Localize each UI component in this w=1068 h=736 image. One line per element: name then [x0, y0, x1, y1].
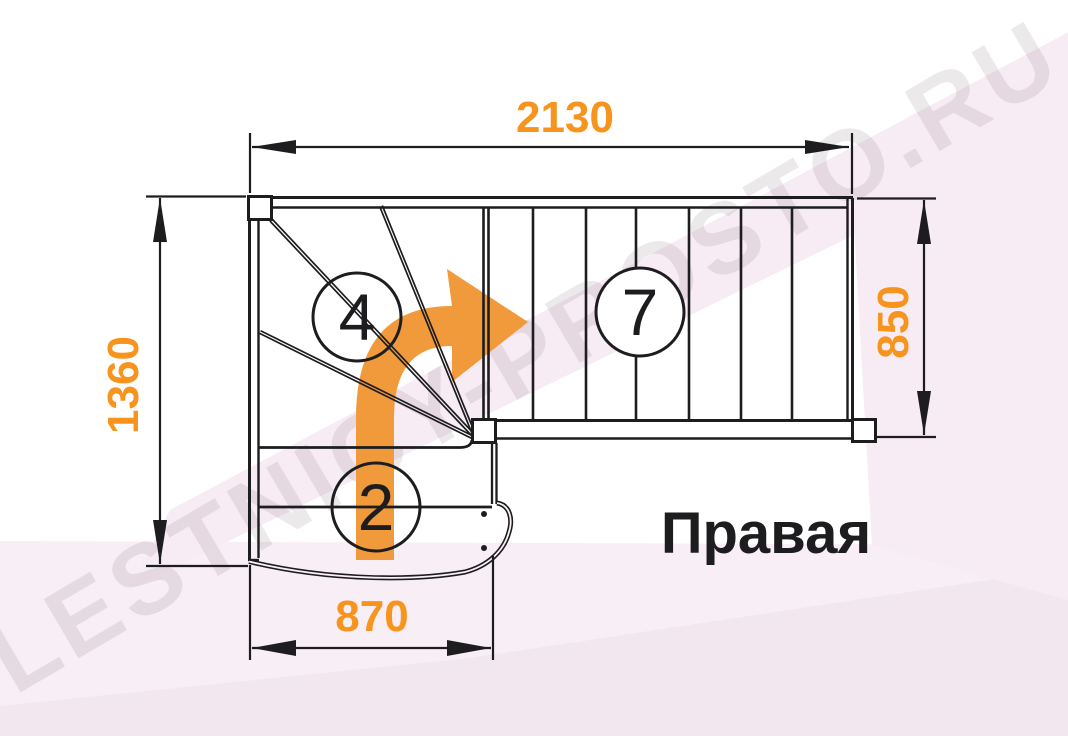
lower-flight-steps-count: 2	[358, 470, 395, 544]
stair-plan-drawing: LESTNICY-PROSTO.RU	[0, 0, 1068, 736]
post-top-left	[249, 197, 272, 220]
dimension-left-value: 1360	[99, 336, 148, 434]
orientation-label: Правая	[661, 501, 871, 566]
stair-plan-page: LESTNICY-PROSTO.RU	[0, 0, 1068, 736]
post-bottom-right	[853, 420, 876, 442]
fixing-dot	[481, 545, 487, 551]
upper-flight-steps-count: 7	[622, 275, 659, 349]
post-center	[473, 420, 496, 443]
dimension-right-value: 850	[869, 285, 918, 358]
fixing-dot	[481, 511, 487, 517]
dimension-top-value: 2130	[516, 93, 614, 142]
winder-steps-count: 4	[339, 280, 376, 354]
dimension-bottom-value: 870	[335, 592, 408, 641]
